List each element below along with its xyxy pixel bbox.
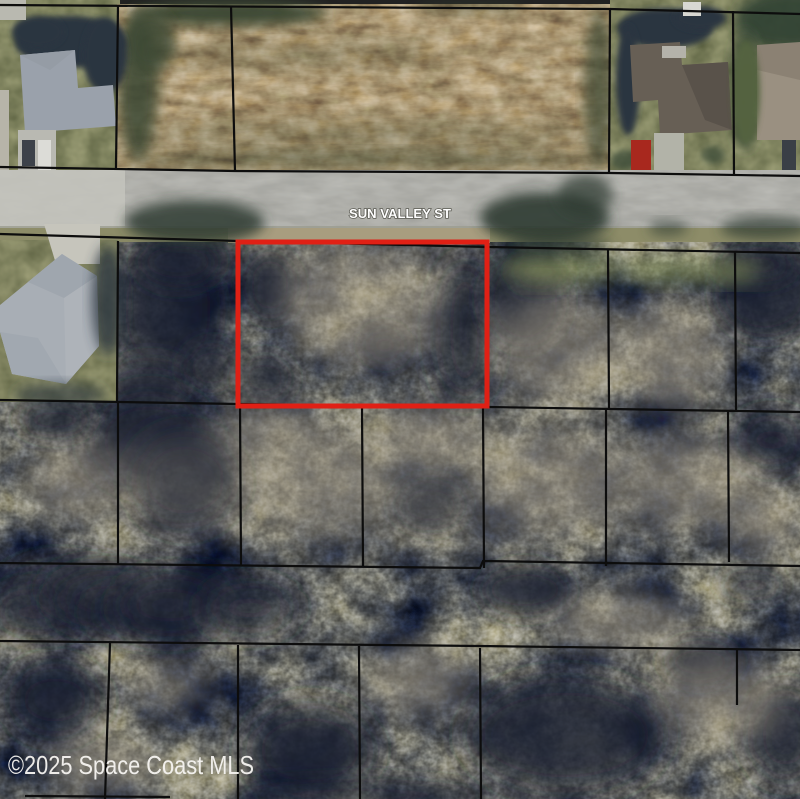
svg-text:©2025 Space Coast MLS: ©2025 Space Coast MLS (8, 750, 254, 780)
svg-text:SUN VALLEY ST: SUN VALLEY ST (349, 206, 451, 221)
